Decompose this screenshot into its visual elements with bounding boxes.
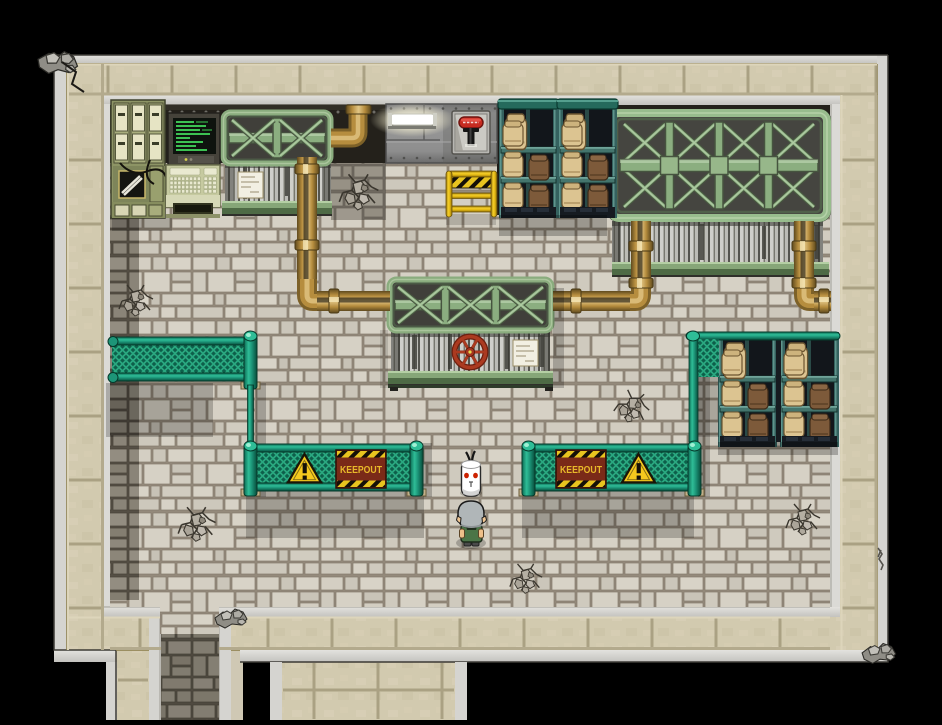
svg-text:KEEPOUT: KEEPOUT [560, 465, 602, 476]
svg-text:KEEPOUT: KEEPOUT [340, 465, 382, 476]
